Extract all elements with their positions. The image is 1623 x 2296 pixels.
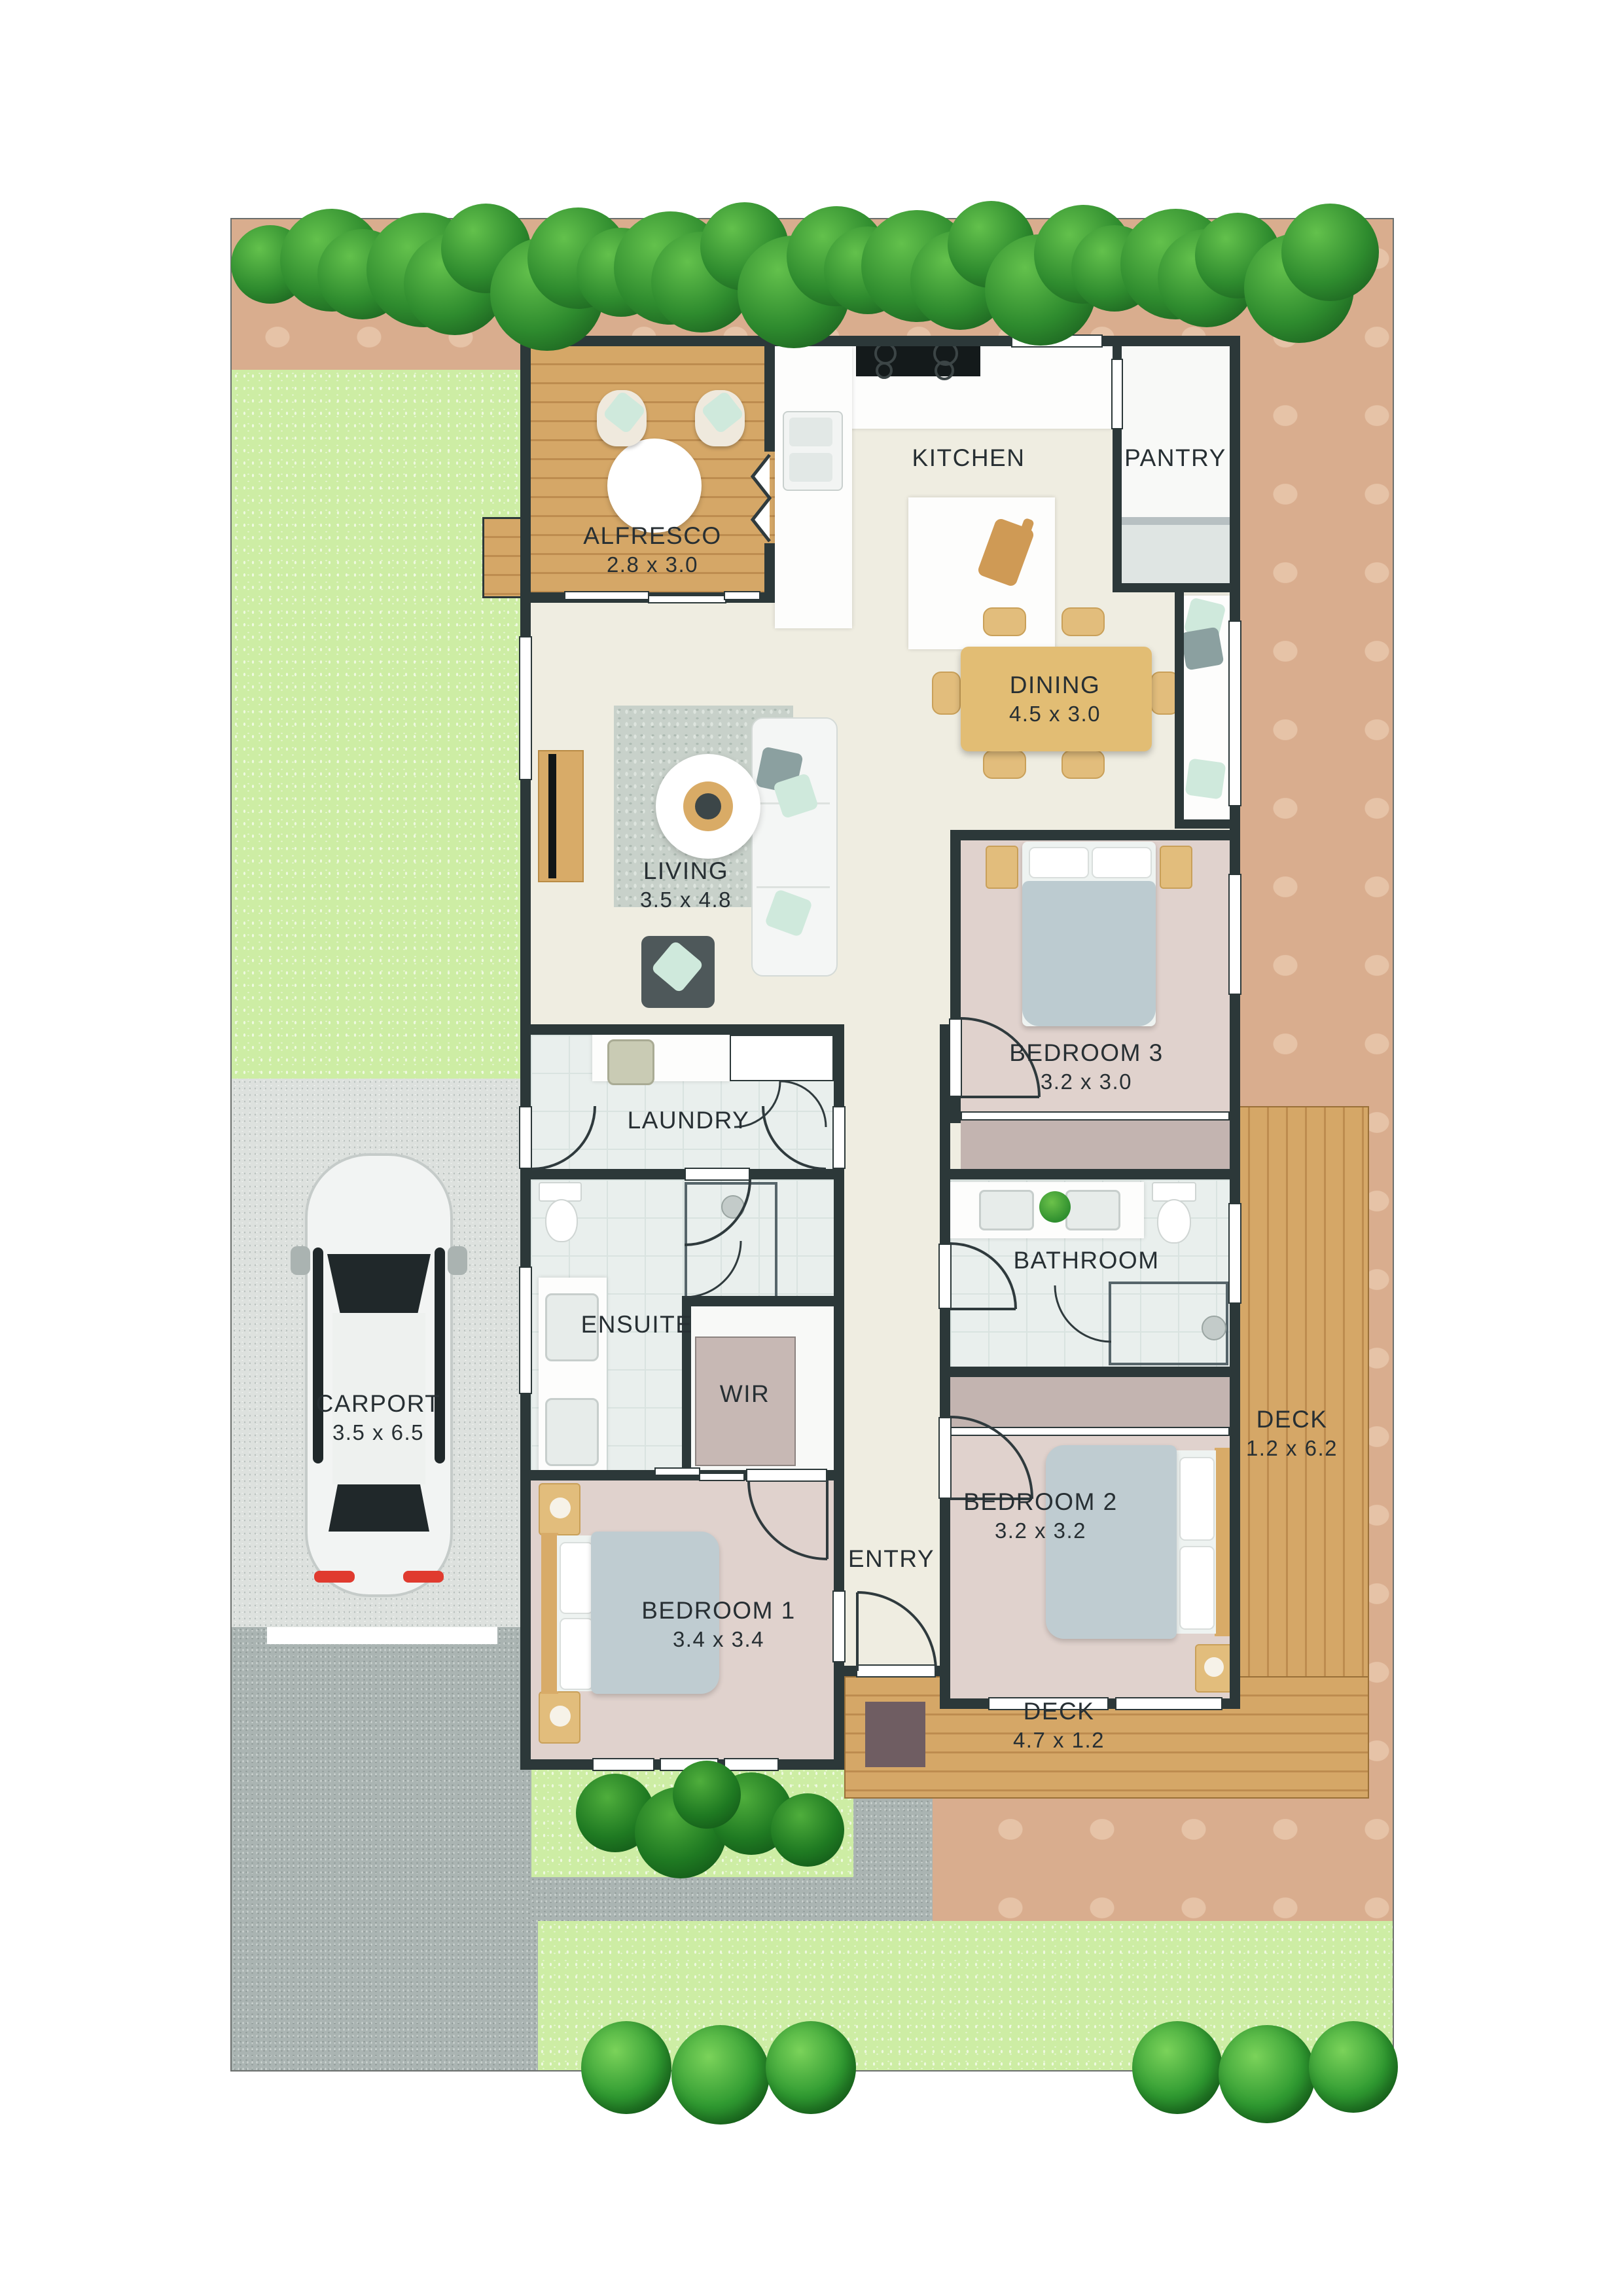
room-label-ensuite: ENSUITE bbox=[581, 1310, 693, 1340]
dining-window bbox=[1228, 620, 1241, 806]
wall bbox=[682, 1296, 834, 1306]
laundry-ext-door bbox=[519, 1106, 532, 1169]
room-name: DECK bbox=[1013, 1696, 1105, 1727]
wall bbox=[520, 1169, 844, 1179]
wall bbox=[520, 336, 531, 1770]
room-name: BEDROOM 3 bbox=[1009, 1038, 1164, 1068]
room-dims: 3.2 x 3.2 bbox=[963, 1517, 1118, 1545]
room-label-deck-side: DECK1.2 x 6.2 bbox=[1246, 1405, 1338, 1462]
wall bbox=[764, 543, 775, 592]
room-label-pantry: PANTRY bbox=[1124, 443, 1226, 473]
bathroom-door-gap bbox=[938, 1244, 952, 1309]
bedside-table bbox=[1160, 846, 1192, 889]
tree bbox=[1219, 2025, 1315, 2123]
wall bbox=[940, 1666, 950, 1709]
room-dims: 3.2 x 3.0 bbox=[1009, 1068, 1164, 1096]
room-label-bedroom3: BEDROOM 33.2 x 3.0 bbox=[1009, 1038, 1164, 1096]
alfresco-bifold-door bbox=[724, 591, 760, 600]
room-label-bathroom: BATHROOM bbox=[1013, 1246, 1159, 1276]
ensuite-door-gap bbox=[685, 1168, 750, 1181]
dining-chair bbox=[983, 607, 1026, 636]
ensuite-sink bbox=[545, 1398, 599, 1466]
pantry-door-gap bbox=[1111, 359, 1123, 429]
wall bbox=[950, 830, 1240, 840]
hedge-row bbox=[239, 191, 1378, 322]
kitchen-sink bbox=[783, 411, 843, 491]
carport-edge-strip bbox=[267, 1627, 497, 1644]
tree bbox=[1309, 2021, 1398, 2113]
driveway-gravel bbox=[232, 1627, 538, 2070]
room-dims: 3.4 x 3.4 bbox=[641, 1626, 796, 1653]
shrub bbox=[771, 1793, 844, 1867]
room-name: ENTRY bbox=[848, 1544, 935, 1574]
room-label-alfresco: ALFRESCO2.8 x 3.0 bbox=[583, 521, 721, 579]
room-name: CARPORT bbox=[316, 1389, 441, 1419]
bathroom-sink bbox=[979, 1190, 1034, 1230]
room-dims: 4.5 x 3.0 bbox=[1009, 700, 1101, 728]
wall bbox=[940, 1367, 1240, 1377]
bedroom3-door-gap bbox=[949, 1018, 962, 1097]
bed2-pillow bbox=[1179, 1546, 1215, 1630]
pantry-shelf bbox=[1122, 517, 1230, 583]
tree bbox=[581, 2021, 671, 2114]
tv-console bbox=[538, 750, 584, 882]
robe3-slider bbox=[961, 1111, 1230, 1121]
shrub bbox=[673, 1761, 741, 1829]
bed1-headboard bbox=[541, 1533, 558, 1694]
room-dims: 2.8 x 3.0 bbox=[583, 551, 721, 579]
room-dims: 3.5 x 4.8 bbox=[640, 886, 732, 914]
entry-sidelight bbox=[832, 1590, 846, 1662]
room-name: LIVING bbox=[640, 856, 732, 886]
room-label-kitchen: KITCHEN bbox=[912, 443, 1026, 473]
wir-slider bbox=[654, 1467, 700, 1476]
bathroom-window bbox=[1228, 1203, 1241, 1304]
living-window bbox=[519, 636, 532, 780]
coffee-table-bowl bbox=[695, 793, 721, 819]
tv-screen bbox=[548, 754, 556, 878]
room-label-bedroom1: BEDROOM 13.4 x 3.4 bbox=[641, 1596, 796, 1653]
room-name: BATHROOM bbox=[1013, 1246, 1159, 1276]
alfresco-bifold-door bbox=[564, 591, 649, 600]
room-label-wir: WIR bbox=[720, 1379, 770, 1409]
bedroom2-robe bbox=[950, 1377, 1230, 1428]
bathroom-toilet-bowl bbox=[1157, 1199, 1191, 1244]
seat-pillow bbox=[1180, 626, 1224, 670]
bed2-pillow bbox=[1179, 1457, 1215, 1541]
shower-head bbox=[721, 1195, 745, 1219]
room-dims: 1.2 x 6.2 bbox=[1246, 1435, 1338, 1462]
alfresco-bifold-door bbox=[648, 595, 726, 603]
bedroom2-door-gap bbox=[938, 1417, 952, 1499]
room-dims: 3.5 x 6.5 bbox=[316, 1419, 441, 1446]
dining-chair bbox=[932, 672, 961, 715]
laundry-sink bbox=[607, 1039, 654, 1085]
shrub-cluster bbox=[563, 1754, 864, 1872]
wall bbox=[940, 1169, 1240, 1179]
sink-bowl bbox=[789, 418, 832, 446]
vanity-plant bbox=[1039, 1191, 1071, 1223]
shower-head bbox=[1202, 1316, 1226, 1340]
bedside-table bbox=[986, 846, 1018, 889]
wall bbox=[764, 336, 775, 452]
room-name: PANTRY bbox=[1124, 443, 1226, 473]
sink-bowl bbox=[789, 453, 832, 482]
laundry-door-gap bbox=[832, 1106, 846, 1169]
burner bbox=[935, 361, 954, 380]
room-label-bedroom2: BEDROOM 23.2 x 3.2 bbox=[963, 1487, 1118, 1545]
wall bbox=[1175, 819, 1240, 829]
room-name: DINING bbox=[1009, 670, 1101, 700]
tree bbox=[766, 2021, 856, 2114]
bathroom-sink bbox=[1065, 1190, 1120, 1230]
bedside-lamp bbox=[550, 1498, 571, 1518]
bedroom2-window bbox=[1115, 1697, 1222, 1710]
room-name: WIR bbox=[720, 1379, 770, 1409]
laundry-cupboard bbox=[730, 1035, 834, 1081]
room-name: LAUNDRY bbox=[628, 1105, 750, 1136]
wall bbox=[940, 1024, 950, 1666]
bedroom1-door-gap bbox=[746, 1469, 827, 1482]
bed3-pillow bbox=[1029, 847, 1089, 878]
wall bbox=[520, 1024, 844, 1035]
bed1-pillow bbox=[560, 1618, 594, 1690]
tree bbox=[1132, 2021, 1222, 2114]
room-name: ENSUITE bbox=[581, 1310, 693, 1340]
burner bbox=[876, 362, 893, 379]
room-label-carport: CARPORT3.5 x 6.5 bbox=[316, 1389, 441, 1446]
wall bbox=[1175, 592, 1184, 829]
ensuite-toilet-bowl bbox=[545, 1199, 578, 1242]
room-label-deck-rear: DECK4.7 x 1.2 bbox=[1013, 1696, 1105, 1754]
floorplan-page: ALFRESCO2.8 x 3.0 KITCHEN PANTRY DINING4… bbox=[0, 0, 1623, 2296]
room-name: DECK bbox=[1246, 1405, 1338, 1435]
tree bbox=[671, 2025, 770, 2125]
front-lawn bbox=[232, 370, 530, 1079]
bed2-headboard bbox=[1215, 1448, 1230, 1636]
bedside-lamp bbox=[550, 1706, 571, 1727]
wall bbox=[520, 336, 1240, 346]
wall bbox=[1230, 336, 1240, 1709]
room-name: BEDROOM 1 bbox=[641, 1596, 796, 1626]
dining-chair bbox=[1061, 607, 1105, 636]
room-label-dining: DINING4.5 x 3.0 bbox=[1009, 670, 1101, 728]
bedroom3-robe bbox=[961, 1121, 1230, 1169]
room-name: KITCHEN bbox=[912, 443, 1026, 473]
wall bbox=[1113, 583, 1240, 592]
alfresco-table bbox=[607, 439, 702, 533]
carport-slab bbox=[232, 1079, 530, 1635]
room-label-entry: ENTRY bbox=[848, 1544, 935, 1574]
room-label-laundry: LAUNDRY bbox=[628, 1105, 750, 1136]
robe2-slider bbox=[950, 1427, 1230, 1436]
bed3-pillow bbox=[1092, 847, 1152, 878]
dining-chair bbox=[983, 750, 1026, 779]
bed3-blanket bbox=[1022, 881, 1156, 1026]
bedside-lamp bbox=[1204, 1657, 1224, 1677]
room-dims: 4.7 x 1.2 bbox=[1013, 1727, 1105, 1754]
sofa-cushion-line bbox=[757, 886, 830, 888]
room-label-living: LIVING3.5 x 4.8 bbox=[640, 856, 732, 914]
room-name: BEDROOM 2 bbox=[963, 1487, 1118, 1517]
doormat bbox=[865, 1702, 925, 1767]
bedroom3-window bbox=[1228, 874, 1241, 995]
wir-slider bbox=[699, 1473, 745, 1481]
dining-chair bbox=[1061, 750, 1105, 779]
hedge-bush bbox=[1281, 204, 1379, 301]
room-name: ALFRESCO bbox=[583, 521, 721, 551]
front-door-gap bbox=[856, 1664, 936, 1677]
seat-pillow bbox=[1185, 758, 1226, 799]
ensuite-window bbox=[519, 1266, 532, 1394]
bed1-pillow bbox=[560, 1542, 594, 1614]
